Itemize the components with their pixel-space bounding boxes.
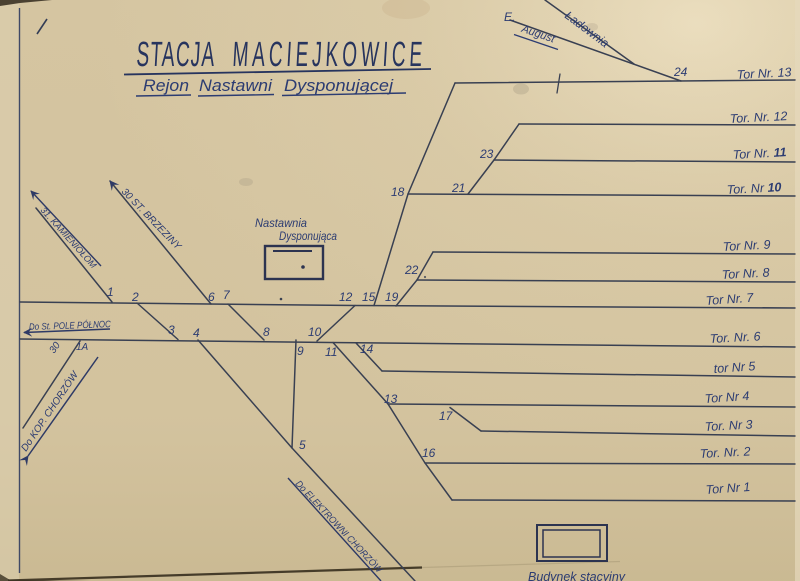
svg-text:Tor. Nr 3: Tor. Nr 3 xyxy=(704,418,752,434)
svg-text:18: 18 xyxy=(391,185,405,199)
svg-text:22: 22 xyxy=(404,263,419,277)
svg-text:Tor. Nr. 2: Tor. Nr. 2 xyxy=(699,444,750,461)
svg-text:15: 15 xyxy=(362,290,376,304)
svg-text:Rejon: Rejon xyxy=(143,76,189,95)
svg-text:24: 24 xyxy=(673,65,688,79)
svg-text:Tor Nr. 11: Tor Nr. 11 xyxy=(732,145,786,162)
svg-text:MACIEJKOWICE: MACIEJKOWICE xyxy=(232,34,428,74)
svg-text:1A: 1A xyxy=(76,342,89,353)
svg-text:1: 1 xyxy=(107,285,114,299)
svg-text:Tor Nr. 13: Tor Nr. 13 xyxy=(736,65,791,82)
svg-text:5: 5 xyxy=(299,438,306,452)
svg-text:2: 2 xyxy=(131,290,139,304)
svg-text:8: 8 xyxy=(263,325,270,339)
svg-text:Tor Nr. 8: Tor Nr. 8 xyxy=(721,266,769,282)
svg-text:3: 3 xyxy=(168,323,175,337)
svg-text:21: 21 xyxy=(451,181,465,195)
svg-text:17: 17 xyxy=(439,409,454,423)
svg-text:Tor. Nr 10: Tor. Nr 10 xyxy=(726,180,781,197)
svg-text:Budynek stacyjny: Budynek stacyjny xyxy=(528,569,626,581)
svg-text:23: 23 xyxy=(479,147,494,161)
svg-text:10: 10 xyxy=(308,325,322,339)
svg-text:Tor. Nr. 6: Tor. Nr. 6 xyxy=(709,329,760,346)
svg-text:Nastawnia: Nastawnia xyxy=(255,216,307,230)
svg-text:16: 16 xyxy=(422,446,436,460)
svg-text:tor Nr 5: tor Nr 5 xyxy=(713,359,756,376)
svg-text:9: 9 xyxy=(297,344,304,358)
svg-text:Nastawni: Nastawni xyxy=(199,76,273,95)
svg-text:13: 13 xyxy=(384,392,398,406)
svg-text:Dysponującej: Dysponującej xyxy=(284,76,394,95)
svg-text:E.: E. xyxy=(504,10,515,24)
svg-text:Tor Nr. 9: Tor Nr. 9 xyxy=(722,238,770,254)
svg-text:4: 4 xyxy=(193,326,200,340)
svg-text:11: 11 xyxy=(325,345,337,359)
svg-text:14: 14 xyxy=(360,342,374,356)
svg-text:STACJA: STACJA xyxy=(136,34,217,74)
svg-text:19: 19 xyxy=(385,290,399,304)
svg-text:Dysponująca: Dysponująca xyxy=(279,229,337,243)
svg-text:6: 6 xyxy=(208,290,215,304)
svg-text:12: 12 xyxy=(339,290,353,304)
